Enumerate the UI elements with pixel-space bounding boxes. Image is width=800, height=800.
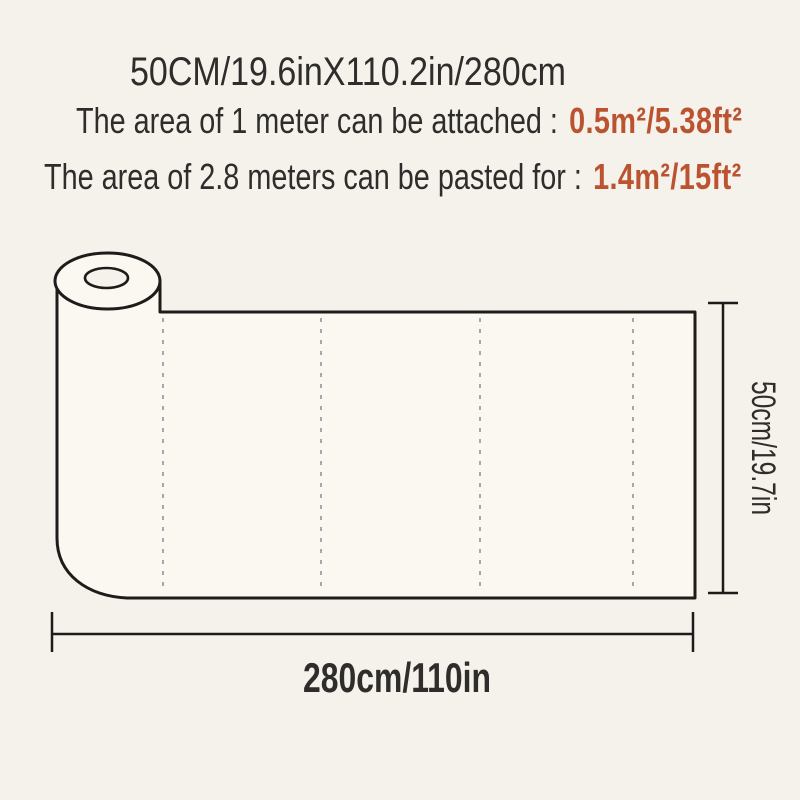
product-spec-image: 50CM/19.6inX110.2in/280cm The area of 1 … [0,0,800,800]
size-title: 50CM/19.6inX110.2in/280cm [130,50,566,95]
area-spec-1-label: The area of 1 meter can be attached : [76,100,558,142]
roll-core-hole [85,268,128,288]
area-spec-2-label: The area of 2.8 meters can be pasted for… [44,156,582,198]
area-spec-1-value: 0.5m²/5.38ft² [569,100,742,142]
unrolled-sheet [57,281,695,598]
area-spec-2: The area of 2.8 meters can be pasted for… [44,156,742,198]
height-dimension-label: 50cm/19.7in [744,381,782,515]
wallpaper-roll-diagram: 50cm/19.7in 280cm/110in [0,230,800,700]
width-dimension: 280cm/110in [52,612,693,700]
area-spec-2-value: 1.4m²/15ft² [593,156,741,198]
height-dimension: 50cm/19.7in [708,303,782,593]
width-dimension-label: 280cm/110in [303,654,491,700]
area-spec-1: The area of 1 meter can be attached : 0.… [76,100,742,142]
